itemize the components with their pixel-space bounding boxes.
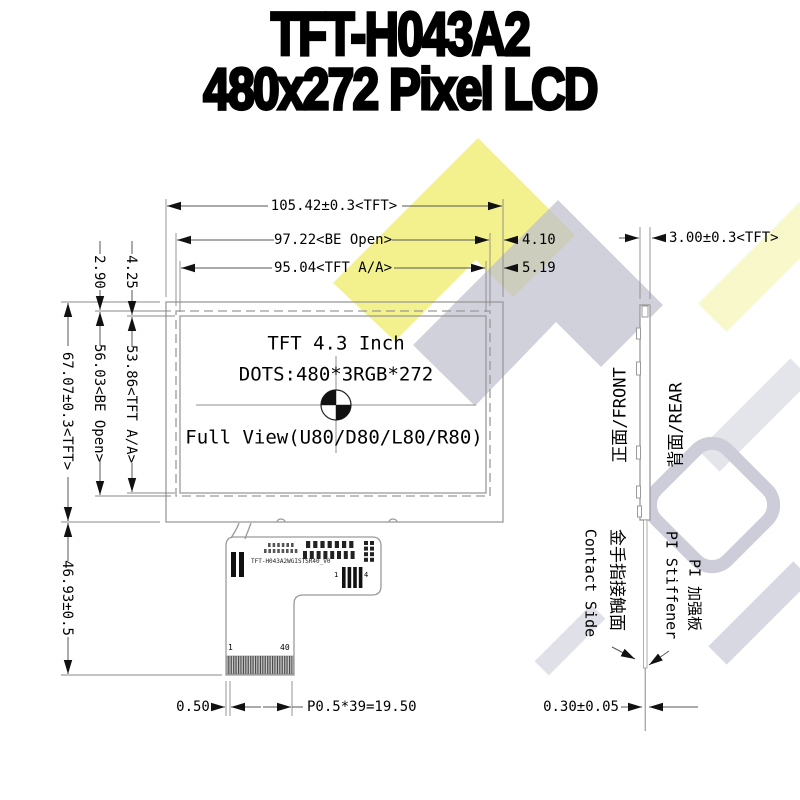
pin-last-label: 40 [280,644,290,652]
screen-size-text: TFT 4.3 Inch [267,335,404,354]
fpc-part-number: TFT-H043A2WGISTSR40_V0 [251,559,330,565]
contact-side-cn-label: 金手指接触面 [608,529,625,631]
watermark-logo [333,138,800,675]
dim-fpc-length: 46.93±0.5 [60,560,74,636]
dim-offset-be-top: 2.90 [92,255,106,289]
page-title-resolution: 480x272 Pixel LCD [52,60,748,118]
side-rear-label: 背面/REAR [669,382,686,467]
dim-offset-be-right: 4.10 [522,233,556,247]
dim-width-be-open: 97.22<BE Open> [274,233,392,247]
dim-fpc-thickness: 0.30±0.05 [543,700,619,714]
pin-first-label: 1 [228,644,233,652]
dim-width-aa: 95.04<TFT A/A> [274,261,392,275]
dim-offset-aa-top: 4.25 [124,255,138,289]
contact-side-en-label: Contact Side [583,529,598,637]
stiffener-en-label: PI Stiffener [664,531,679,639]
bar-last-label: 4 [364,572,368,579]
dim-pin-pitch: P0.5*39=19.50 [307,700,417,714]
dim-thickness: 3.00±0.3<TFT> [669,231,779,245]
dim-pin-margin: 0.50 [176,700,210,714]
datasheet-drawing-page: TFT-H043A2 480x272 Pixel LCD TFT 4.3 Inc… [0,0,800,800]
stiffener-cn-label: PI 加强板 [687,559,702,631]
screen-view-text: Full View(U80/D80/L80/R80) [185,429,482,448]
dim-width-tft: 105.42±0.3<TFT> [271,199,397,213]
dim-height-be-open: 56.03<BE Open> [92,344,106,462]
screen-dots-text: DOTS:480*3RGB*272 [239,366,433,385]
dim-offset-aa-right: 5.19 [522,261,556,275]
side-view-profile [637,305,651,668]
bar-first-label: 1 [334,572,338,579]
connector-pins [227,656,293,674]
side-front-label: 正面/FRONT [613,367,630,462]
dim-height-aa: 53.86<TFT A/A> [124,345,138,463]
center-mark-icon [321,390,351,420]
dim-height-tft: 67.07±0.3<TFT> [60,352,74,470]
